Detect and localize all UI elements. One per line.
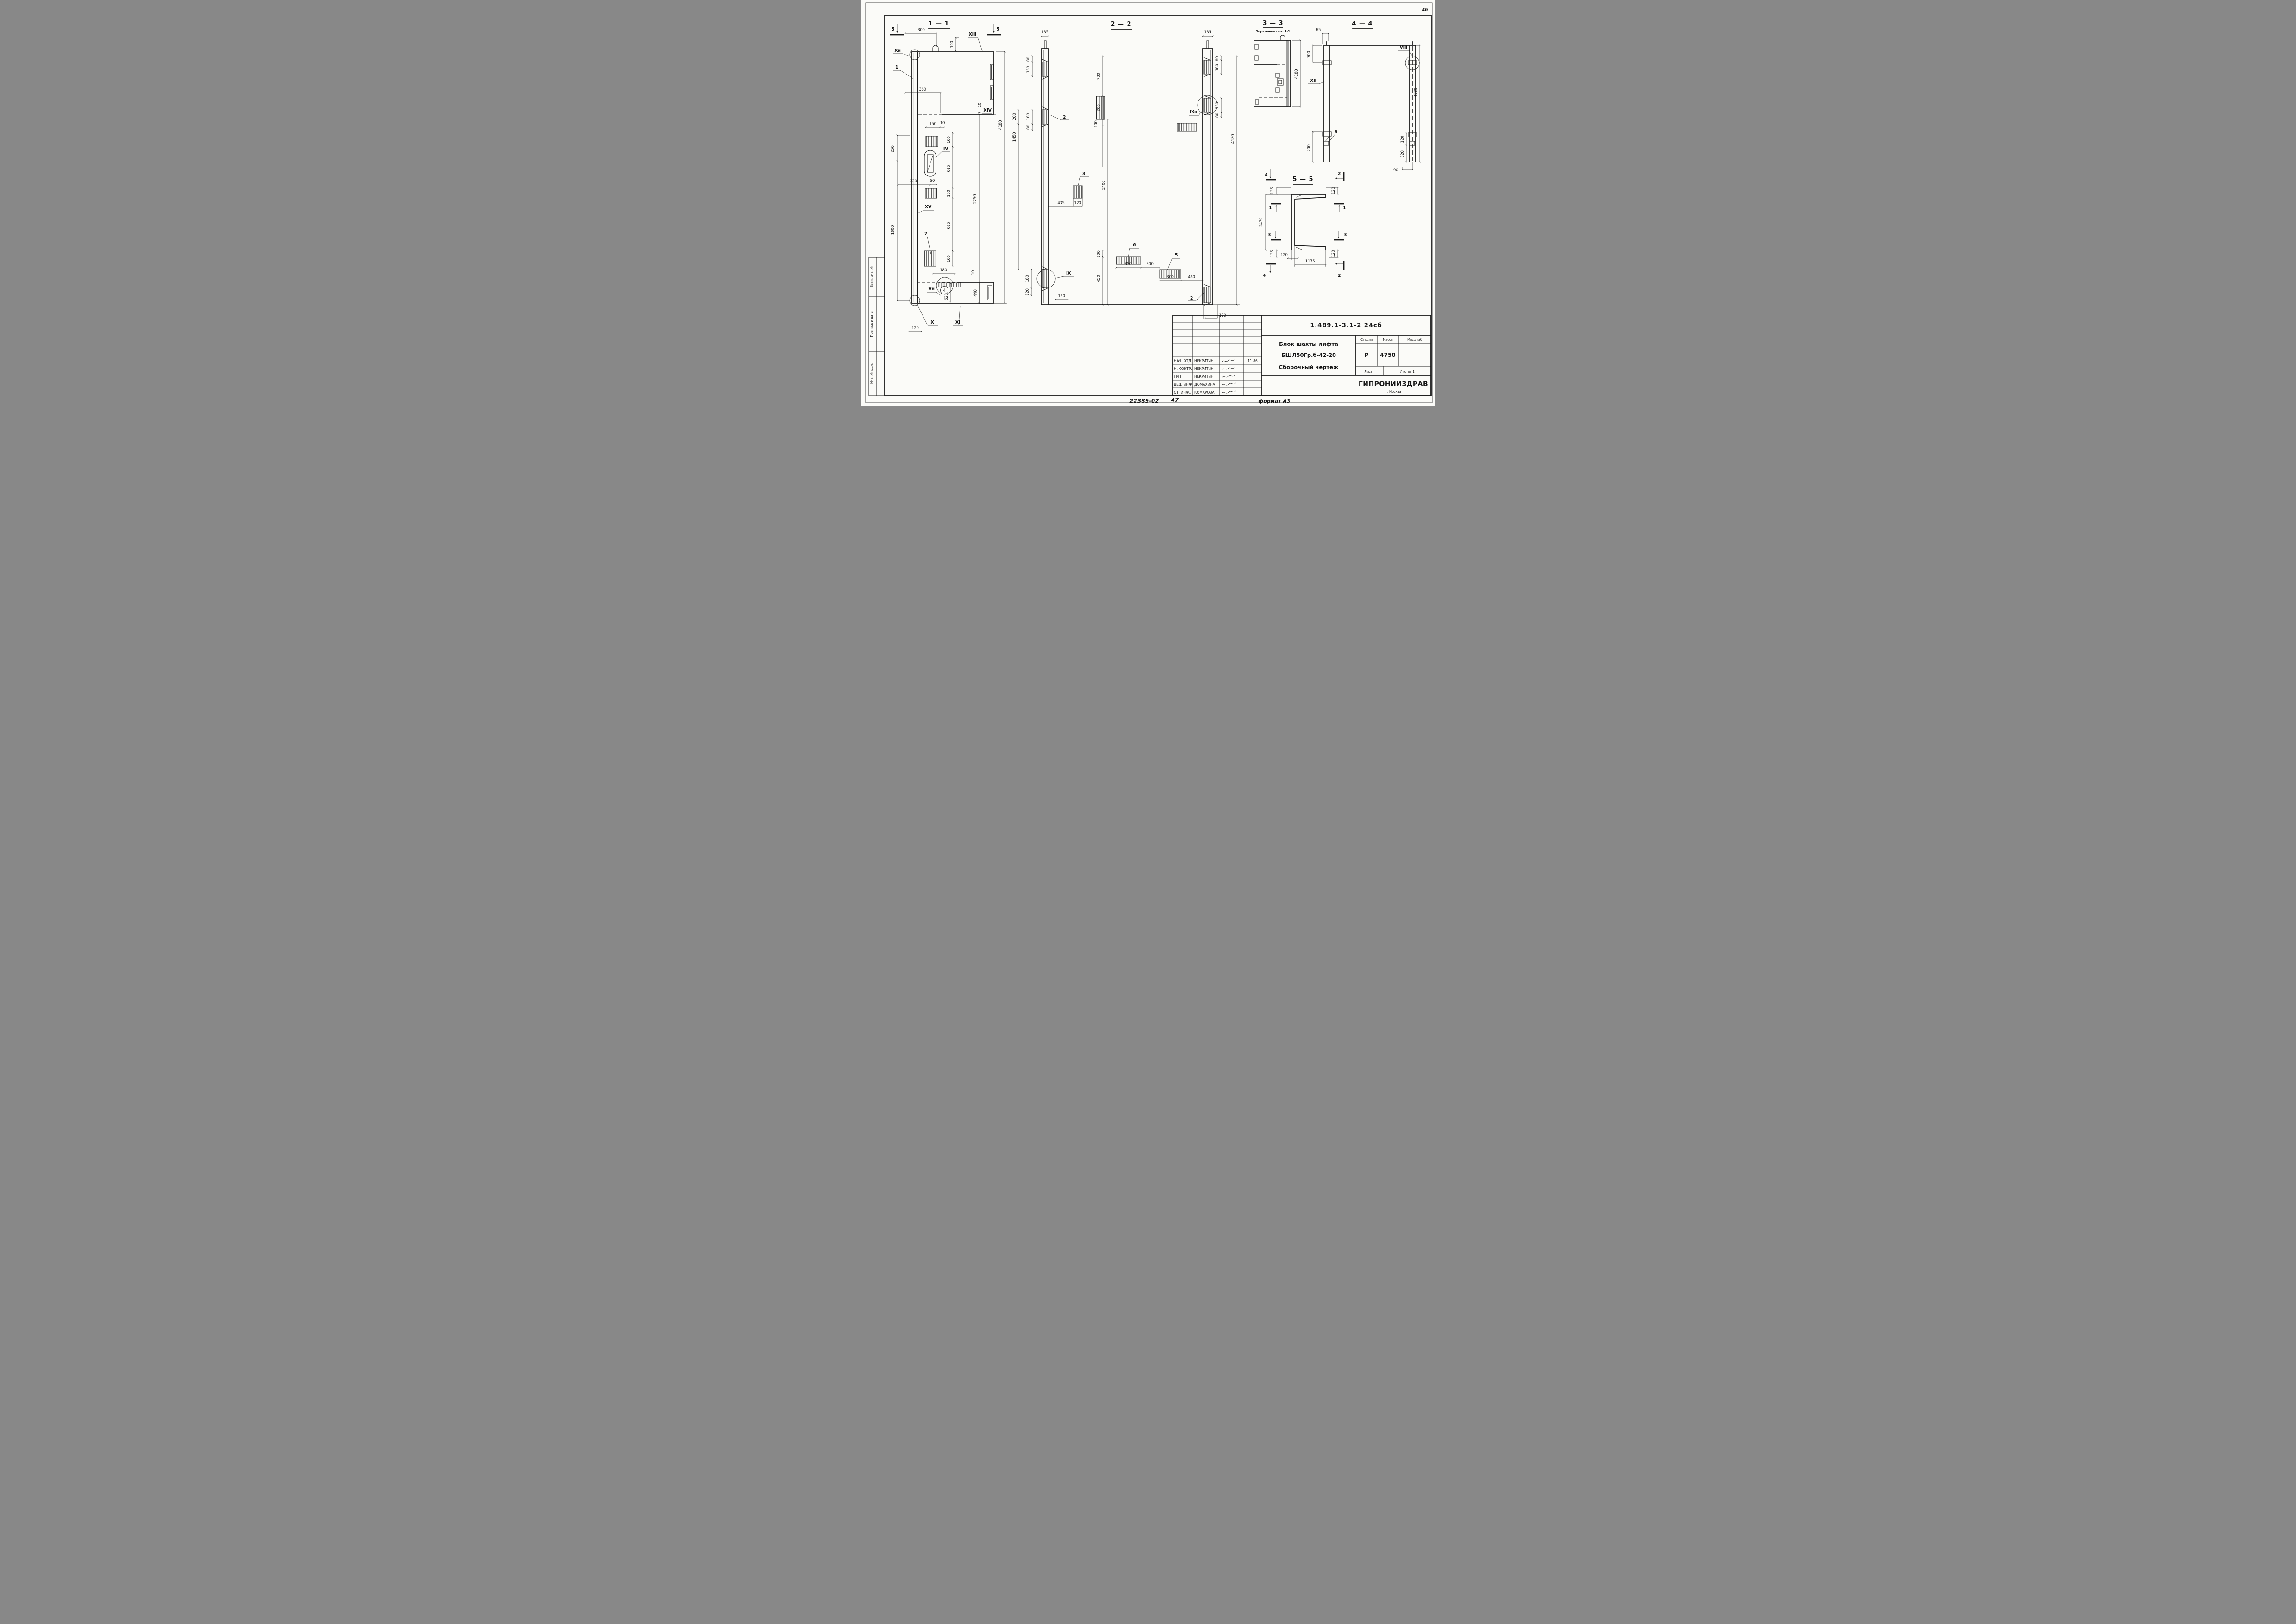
- svg-text:120: 120: [1058, 294, 1065, 299]
- svg-text:10: 10: [971, 270, 976, 275]
- left-column: [1037, 41, 1055, 305]
- svg-text:XII: XII: [1310, 78, 1316, 83]
- lifting-loop: [933, 45, 938, 52]
- signature-rows: НАЧ. ОТД. НЕКРИТИН 11 86 Н. КОНТР. НЕКРИ…: [1174, 359, 1258, 394]
- dimension-lines: [1266, 187, 1338, 267]
- section-4-4: 4 — 4 65 700 VIII: [1307, 20, 1423, 173]
- section-5-5: 5 — 5 4 2 1 1 3 3 4 2: [1259, 169, 1347, 278]
- svg-text:2: 2: [1190, 296, 1193, 301]
- svg-text:360: 360: [919, 87, 926, 92]
- svg-text:50: 50: [930, 179, 935, 183]
- organization: ГИПРОНИИЗДРАВ: [1359, 381, 1428, 388]
- stamp-doc-number: 22389-02: [1129, 398, 1159, 404]
- cut-label: 2: [1338, 171, 1341, 176]
- header-scale: Масштаб: [1407, 338, 1422, 342]
- svg-text:700: 700: [1307, 144, 1311, 151]
- svg-text:1: 1: [895, 65, 898, 70]
- svg-text:120: 120: [1280, 253, 1287, 257]
- svg-text:80: 80: [1215, 56, 1220, 61]
- channel-outline: [1291, 194, 1326, 250]
- svg-text:300: 300: [1167, 275, 1173, 280]
- cut-label: 5: [997, 27, 999, 32]
- svg-text:180: 180: [1026, 66, 1031, 73]
- svg-text:435: 435: [1057, 201, 1064, 206]
- header-sheet: Лист: [1365, 370, 1373, 374]
- embedded-brackets: [987, 64, 993, 300]
- drawing-frame: 46: [866, 3, 1432, 403]
- svg-text:120: 120: [1219, 313, 1226, 318]
- callout-leaders: [1050, 111, 1204, 301]
- svg-text:120: 120: [1074, 201, 1081, 206]
- svg-text:615: 615: [947, 165, 951, 172]
- bottom-annotations: 22389-02 47 формат А3: [1129, 397, 1291, 404]
- svg-text:200: 200: [1097, 104, 1101, 111]
- svg-text:180: 180: [1215, 102, 1220, 109]
- header-mass: Масса: [1383, 338, 1392, 342]
- svg-text:10: 10: [978, 103, 982, 107]
- sig-name: НЕКРИТИН: [1194, 359, 1214, 363]
- svg-text:8: 8: [1335, 130, 1338, 135]
- svg-text:320: 320: [1400, 150, 1405, 157]
- section-title: 1 — 1: [928, 20, 949, 27]
- svg-text:700: 700: [1307, 51, 1311, 58]
- svg-text:120: 120: [1331, 250, 1336, 257]
- svg-text:135: 135: [1041, 30, 1048, 35]
- svg-text:2: 2: [1063, 115, 1066, 120]
- svg-text:IX: IX: [1066, 271, 1071, 276]
- cut-label: 1: [1269, 206, 1272, 211]
- sig-name: НЕКРИТИН: [1194, 375, 1214, 379]
- detail-circle-xn: [910, 50, 920, 60]
- sig-role: СТ. ИНЖ.: [1174, 390, 1191, 394]
- title-block: 1.489.1-3.1-2 24сб Блок шахты лифта БШЛ5…: [1173, 315, 1431, 396]
- svg-text:1175: 1175: [1305, 259, 1315, 264]
- svg-text:300: 300: [1146, 262, 1153, 267]
- svg-text:4180: 4180: [1414, 88, 1418, 97]
- lifting-loop: [1280, 35, 1285, 40]
- svg-text:180: 180: [1215, 64, 1220, 71]
- svg-text:460: 460: [1188, 275, 1195, 280]
- svg-text:90: 90: [1393, 168, 1398, 173]
- svg-text:615: 615: [947, 222, 951, 229]
- doc-type: Сборочный чертеж: [1279, 364, 1339, 370]
- side-stamp-cell: Инв. №подл.: [870, 363, 873, 384]
- svg-text:120: 120: [911, 326, 918, 331]
- section-2-2: 2 — 2: [1012, 21, 1240, 319]
- svg-text:180: 180: [1025, 275, 1030, 282]
- right-column: [1198, 41, 1217, 306]
- svg-text:160: 160: [947, 190, 951, 197]
- sig-role: ГИП: [1174, 375, 1181, 379]
- cut-marks: 4 2 1 1 3 3 4 2: [1263, 169, 1347, 278]
- drawing-sheet: 46 Взам. инв. № Подпись и дата Инв. №под…: [861, 0, 1435, 406]
- svg-text:160: 160: [947, 255, 951, 262]
- svg-text:120: 120: [1400, 136, 1405, 143]
- sig-name: ДОМАХИНА: [1194, 382, 1216, 387]
- doc-number: 1.489.1-3.1-2 24сб: [1310, 322, 1382, 329]
- svg-text:2470: 2470: [1259, 218, 1264, 227]
- svg-text:XV: XV: [925, 205, 932, 210]
- block-faces: [1042, 56, 1213, 305]
- svg-text:120: 120: [1331, 187, 1336, 194]
- svg-text:220: 220: [910, 179, 917, 184]
- product-name: Блок шахты лифта: [1279, 341, 1338, 347]
- side-stamp-cell: Взам. инв. №: [870, 266, 873, 287]
- svg-text:3: 3: [1082, 171, 1085, 176]
- svg-text:10: 10: [940, 121, 945, 125]
- svg-text:180: 180: [1026, 113, 1031, 120]
- svg-text:180: 180: [940, 268, 947, 273]
- svg-text:VIII: VIII: [1400, 45, 1408, 50]
- cut-label: 3: [1344, 232, 1347, 237]
- svg-text:4180: 4180: [1231, 134, 1235, 144]
- section-title: 4 — 4: [1352, 20, 1373, 27]
- dimension-lines: [1313, 33, 1421, 169]
- svg-text:4: 4: [943, 288, 945, 293]
- svg-text:5: 5: [1175, 253, 1178, 258]
- svg-text:XIV: XIV: [983, 108, 992, 113]
- svg-text:2400: 2400: [1102, 181, 1106, 190]
- svg-text:135: 135: [1270, 187, 1275, 194]
- frame-outline: [1317, 42, 1423, 162]
- svg-text:100: 100: [1094, 120, 1098, 127]
- section-3-3: 3 — 3 Зеркально сеч. 1-1 4180: [1254, 20, 1300, 107]
- svg-text:160: 160: [947, 136, 951, 143]
- detail-circle-x: [910, 295, 920, 306]
- cut-mark-5-right: 5: [987, 24, 1001, 35]
- sig-name: КОМАРОВА: [1194, 390, 1215, 394]
- dimension-lines: [1018, 36, 1237, 319]
- sheet-number: 46: [1422, 7, 1428, 12]
- svg-text:120: 120: [1025, 288, 1030, 295]
- svg-text:7: 7: [924, 231, 927, 237]
- svg-text:X: X: [930, 320, 934, 325]
- stage-value: Р: [1365, 352, 1369, 358]
- svg-text:XI: XI: [955, 320, 960, 325]
- dimension-label: 4180: [1294, 69, 1299, 79]
- inner-plates: [1073, 96, 1197, 278]
- sig-role: Н. КОНТР.: [1174, 367, 1192, 371]
- svg-text:350: 350: [1124, 262, 1131, 267]
- cut-mark-5-left: 5: [890, 24, 904, 35]
- svg-text:250: 250: [891, 145, 895, 152]
- sig-role: НАЧ. ОТД.: [1174, 359, 1192, 363]
- section-subtitle: Зеркально сеч. 1-1: [1256, 30, 1290, 33]
- svg-text:440: 440: [973, 289, 978, 296]
- organization-city: г. Москва: [1385, 390, 1401, 394]
- svg-text:200: 200: [1012, 113, 1017, 120]
- sig-role: ВЕД. ИНЖ.: [1174, 382, 1193, 387]
- blueprint-canvas: 46 Взам. инв. № Подпись и дата Инв. №под…: [861, 0, 1435, 406]
- svg-text:80: 80: [1215, 113, 1220, 118]
- panel-outline: [910, 45, 1007, 306]
- svg-text:135: 135: [1204, 30, 1211, 35]
- product-code: БШЛ50Гр.б-42-20: [1281, 352, 1336, 358]
- oval-opening: [924, 150, 936, 176]
- stamp-sheet-number: 47: [1171, 397, 1179, 403]
- section-title: 5 — 5: [1292, 176, 1313, 183]
- cut-label: 3: [1268, 232, 1271, 237]
- svg-text:1800: 1800: [891, 225, 895, 235]
- svg-text:XIII: XIII: [969, 32, 977, 37]
- cut-label: 2: [1338, 273, 1341, 278]
- cut-label: 4: [1263, 273, 1266, 278]
- cut-label: 4: [1265, 173, 1268, 178]
- svg-text:450: 450: [1097, 275, 1101, 282]
- format-label: формат А3: [1258, 398, 1290, 404]
- cut-label: 5: [892, 27, 894, 32]
- svg-text:150: 150: [929, 122, 936, 126]
- svg-text:135: 135: [1270, 250, 1275, 257]
- svg-text:IXн: IXн: [1190, 110, 1198, 115]
- svg-text:730: 730: [1097, 73, 1101, 80]
- svg-text:4180: 4180: [998, 120, 1003, 130]
- svg-text:100: 100: [1097, 250, 1101, 257]
- svg-text:6: 6: [1133, 243, 1136, 248]
- svg-text:Xн: Xн: [894, 48, 900, 53]
- svg-text:IV: IV: [943, 146, 948, 151]
- section-title: 3 — 3: [1262, 20, 1283, 27]
- mass-value: 4750: [1380, 352, 1395, 358]
- cut-label: 1: [1343, 206, 1346, 211]
- panel-outline: [1254, 35, 1291, 107]
- svg-text:80: 80: [1026, 57, 1031, 62]
- section-title: 2 — 2: [1111, 21, 1131, 28]
- header-sheets: Листов 1: [1400, 370, 1414, 374]
- side-stamp-cell: Подпись и дата: [870, 311, 873, 337]
- header-stage: Стадия: [1360, 338, 1373, 342]
- sig-name: НЕКРИТИН: [1194, 367, 1214, 371]
- svg-text:300: 300: [917, 28, 924, 32]
- sig-date: 11 86: [1248, 359, 1258, 363]
- svg-text:80: 80: [1026, 125, 1031, 130]
- side-stamp: Взам. инв. № Подпись и дата Инв. №подл.: [869, 257, 885, 396]
- svg-text:65: 65: [1316, 28, 1321, 32]
- svg-text:2250: 2250: [973, 194, 978, 204]
- svg-text:Vн: Vн: [928, 287, 934, 292]
- svg-text:100: 100: [950, 41, 955, 48]
- svg-text:1450: 1450: [1012, 132, 1017, 142]
